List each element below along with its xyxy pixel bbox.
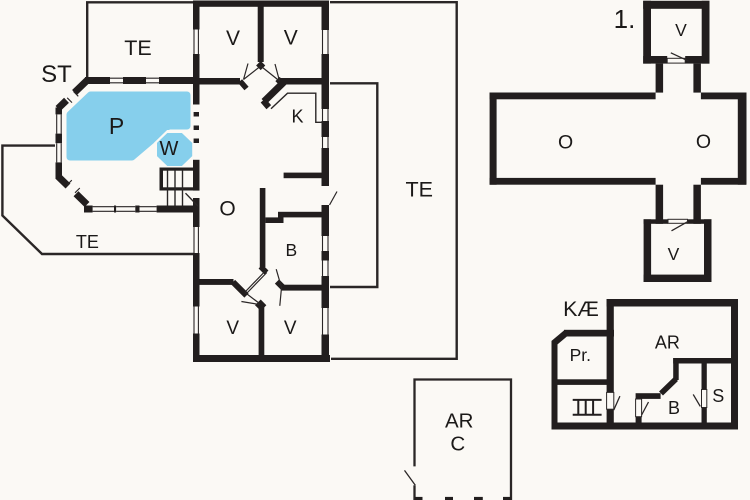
svg-text:O: O [219,198,235,221]
svg-text:V: V [226,318,239,339]
svg-text:B: B [668,398,680,418]
svg-text:V: V [284,318,297,339]
svg-text:V: V [675,20,687,40]
svg-text:O: O [558,132,573,154]
svg-text:B: B [285,240,297,260]
svg-text:Pr.: Pr. [570,345,591,365]
svg-text:KÆ: KÆ [563,297,599,321]
svg-text:AR: AR [655,333,680,353]
svg-text:W: W [159,138,178,160]
svg-text:O: O [696,131,711,153]
svg-text:S: S [712,386,724,406]
svg-text:ST: ST [41,61,72,88]
svg-text:V: V [284,27,298,50]
svg-text:TE: TE [76,232,99,252]
svg-text:TE: TE [124,36,151,60]
svg-text:V: V [668,244,680,264]
svg-text:C: C [450,433,465,456]
svg-text:P: P [109,113,124,139]
svg-text:TE: TE [406,178,433,202]
svg-text:K: K [291,107,303,127]
svg-text:1.: 1. [614,4,636,34]
svg-text:AR: AR [445,410,473,433]
svg-text:V: V [226,27,240,50]
